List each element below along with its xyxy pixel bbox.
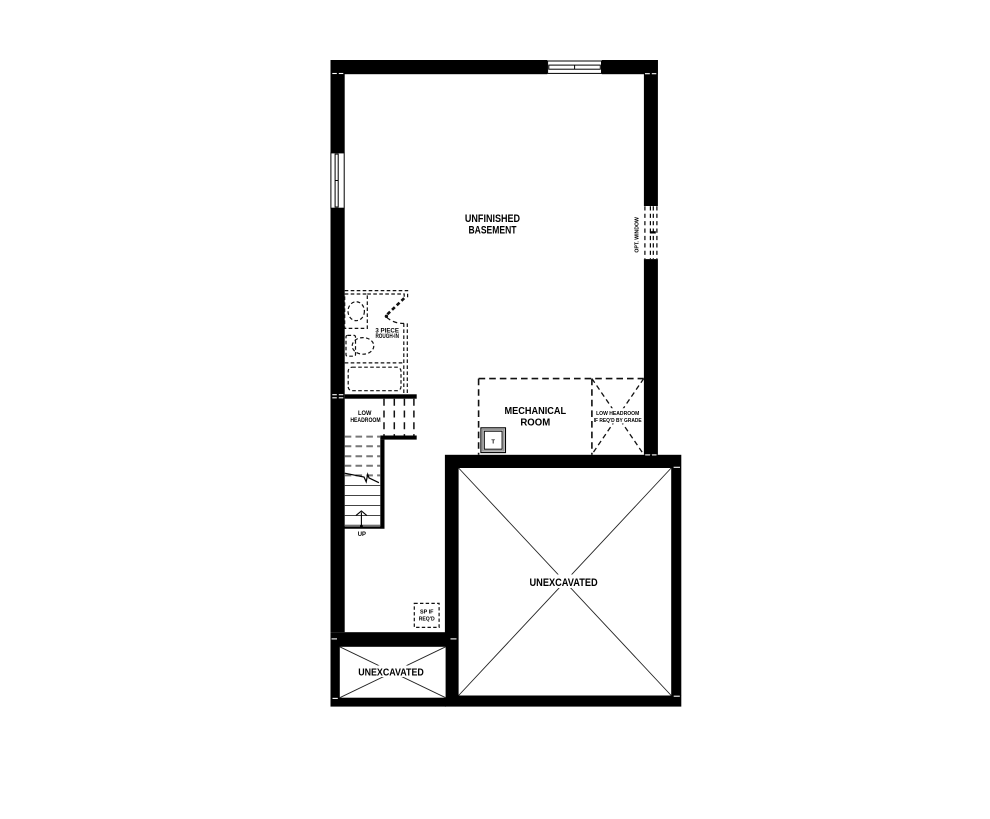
svg-text:SP IF: SP IF (420, 609, 434, 615)
svg-text:UNEXCAVATED: UNEXCAVATED (530, 577, 598, 589)
svg-text:HEADROOM: HEADROOM (350, 417, 380, 424)
svg-text:ROUGH-IN: ROUGH-IN (375, 334, 399, 340)
svg-text:OPT. WINDOW: OPT. WINDOW (635, 216, 641, 252)
svg-text:ROOM: ROOM (520, 417, 550, 429)
svg-text:MECHANICAL: MECHANICAL (505, 405, 567, 417)
svg-text:REQ'D: REQ'D (419, 616, 435, 622)
svg-text:UP: UP (358, 531, 367, 538)
svg-text:LOW: LOW (358, 410, 371, 417)
svg-text:UNFINISHED: UNFINISHED (465, 213, 520, 225)
svg-text:UNEXCAVATED: UNEXCAVATED (358, 668, 424, 679)
svg-text:BASEMENT: BASEMENT (469, 224, 517, 236)
svg-text:T: T (491, 440, 495, 446)
svg-text:LOW HEADROOM: LOW HEADROOM (596, 411, 639, 417)
svg-text:IF REQ'D BY GRADE: IF REQ'D BY GRADE (594, 418, 642, 424)
